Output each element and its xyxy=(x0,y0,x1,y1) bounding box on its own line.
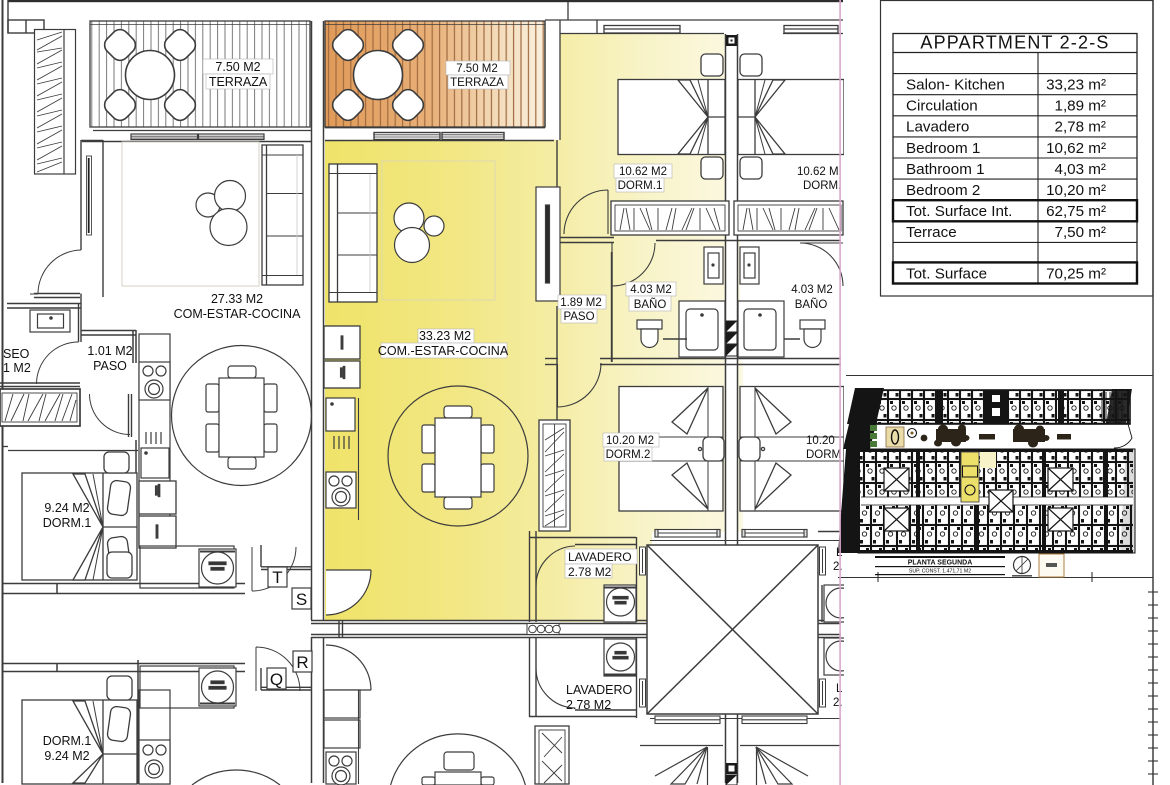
svg-text:2.78 M2: 2.78 M2 xyxy=(568,565,612,579)
svg-text:7.50 M2: 7.50 M2 xyxy=(456,63,498,75)
svg-text:10.62 M2: 10.62 M2 xyxy=(619,166,667,178)
svg-text:70,25 m²: 70,25 m² xyxy=(1046,265,1106,282)
svg-text:Terrace: Terrace xyxy=(906,224,957,241)
svg-text:Q: Q xyxy=(270,670,283,689)
svg-text:2.: 2. xyxy=(833,697,843,709)
svg-text:10.62 M: 10.62 M xyxy=(797,166,839,178)
svg-text:PASO: PASO xyxy=(93,359,127,373)
svg-text:COM.-ESTAR-COCINA: COM.-ESTAR-COCINA xyxy=(378,344,509,358)
svg-text:10,20 m²: 10,20 m² xyxy=(1046,182,1106,199)
svg-text:10.20: 10.20 xyxy=(806,435,835,447)
svg-text:62,75 m²: 62,75 m² xyxy=(1046,203,1106,220)
svg-text:SEO: SEO xyxy=(3,347,30,361)
svg-text:4.03 M2: 4.03 M2 xyxy=(791,284,833,296)
svg-text:27.33 M2: 27.33 M2 xyxy=(211,292,263,306)
svg-text:2,78 m²: 2,78 m² xyxy=(1055,119,1107,136)
svg-text:Bedroom 2: Bedroom 2 xyxy=(906,182,980,199)
svg-text:APPARTMENT 2-2-S: APPARTMENT 2-2-S xyxy=(920,33,1109,53)
svg-text:10,62 m²: 10,62 m² xyxy=(1046,140,1106,157)
svg-text:9.24 M2: 9.24 M2 xyxy=(44,501,89,515)
svg-text:Tot. Surface Int.: Tot. Surface Int. xyxy=(906,203,1012,220)
svg-text:PASO: PASO xyxy=(563,311,594,323)
svg-text:1,89 m²: 1,89 m² xyxy=(1055,98,1107,115)
svg-text:COM-ESTAR-COCINA: COM-ESTAR-COCINA xyxy=(174,307,302,321)
svg-text:T: T xyxy=(272,568,282,587)
svg-text:1.89 M2: 1.89 M2 xyxy=(560,297,602,309)
svg-text:DORM.2: DORM.2 xyxy=(606,449,651,461)
svg-text:BAÑO: BAÑO xyxy=(795,298,828,311)
svg-text:4,03 m²: 4,03 m² xyxy=(1055,161,1107,178)
svg-text:1 M2: 1 M2 xyxy=(3,361,31,375)
svg-text:TERRAZA: TERRAZA xyxy=(450,77,504,89)
svg-text:TERRAZA: TERRAZA xyxy=(209,75,268,89)
svg-text:DORM: DORM xyxy=(806,449,841,461)
svg-text:Tot. Surface: Tot. Surface xyxy=(906,265,987,282)
svg-text:DORM.1: DORM.1 xyxy=(618,180,663,192)
svg-text:33.23 M2: 33.23 M2 xyxy=(419,329,471,343)
svg-text:33,23 m²: 33,23 m² xyxy=(1046,77,1106,94)
svg-text:4.03 M2: 4.03 M2 xyxy=(630,284,672,296)
svg-text:PLANTA SEGUNDA: PLANTA SEGUNDA xyxy=(908,560,973,567)
svg-text:Bedroom 1: Bedroom 1 xyxy=(906,140,980,157)
svg-text:DORM.1: DORM.1 xyxy=(43,734,92,748)
svg-text:S: S xyxy=(296,590,307,609)
svg-text:2.: 2. xyxy=(833,561,843,573)
svg-text:R: R xyxy=(296,653,308,672)
svg-text:7.50 M2: 7.50 M2 xyxy=(215,60,260,74)
svg-text:LAVADERO: LAVADERO xyxy=(566,683,633,697)
svg-text:10.20 M2: 10.20 M2 xyxy=(606,435,654,447)
svg-text:7,50 m²: 7,50 m² xyxy=(1055,224,1107,241)
svg-text:DORM.1: DORM.1 xyxy=(43,516,92,530)
svg-text:LAVADERO: LAVADERO xyxy=(568,550,632,564)
svg-text:Circulation: Circulation xyxy=(906,98,978,115)
svg-text:DORM.: DORM. xyxy=(803,180,841,192)
svg-text:Lavadero: Lavadero xyxy=(906,119,969,136)
svg-text:Salon- Kitchen: Salon- Kitchen xyxy=(906,77,1005,94)
svg-text:1.01 M2: 1.01 M2 xyxy=(87,344,132,358)
svg-text:9.24 M2: 9.24 M2 xyxy=(44,749,89,763)
svg-text:SUP. CONST. 1.471,71 M2: SUP. CONST. 1.471,71 M2 xyxy=(909,569,971,575)
svg-text:BAÑO: BAÑO xyxy=(634,298,667,311)
svg-text:2.78 M2: 2.78 M2 xyxy=(566,698,611,712)
svg-text:Bathroom 1: Bathroom 1 xyxy=(906,161,985,178)
